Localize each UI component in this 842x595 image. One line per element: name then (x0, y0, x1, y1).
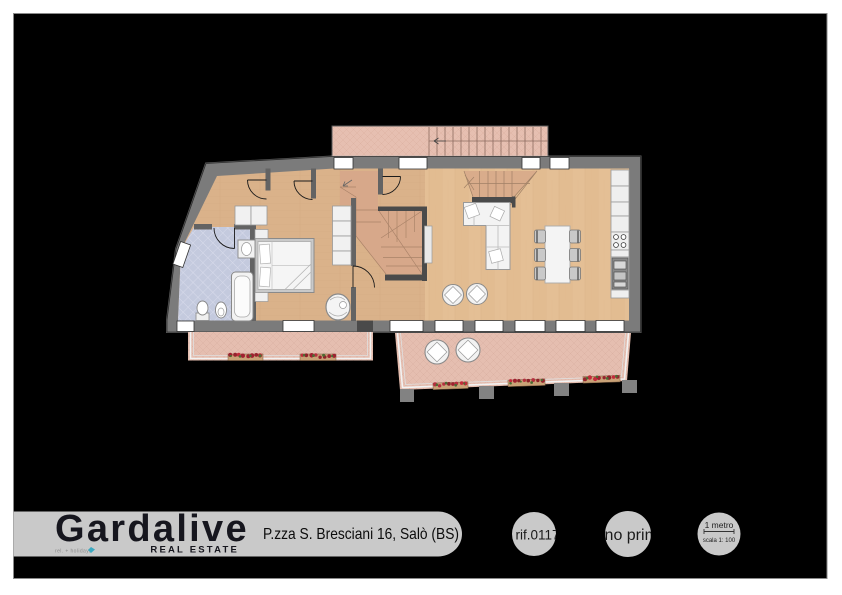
svg-text:rif.0117: rif.0117 (516, 528, 560, 543)
svg-text:P.zza S. Bresciani 16, Salò (B: P.zza S. Bresciani 16, Salò (BS) (263, 526, 459, 543)
svg-text:scala 1: 100: scala 1: 100 (703, 538, 736, 544)
svg-text:rel. + holidays: rel. + holidays (55, 549, 92, 555)
svg-text:REAL ESTATE: REAL ESTATE (150, 545, 239, 556)
svg-text:1 metro: 1 metro (705, 520, 734, 530)
